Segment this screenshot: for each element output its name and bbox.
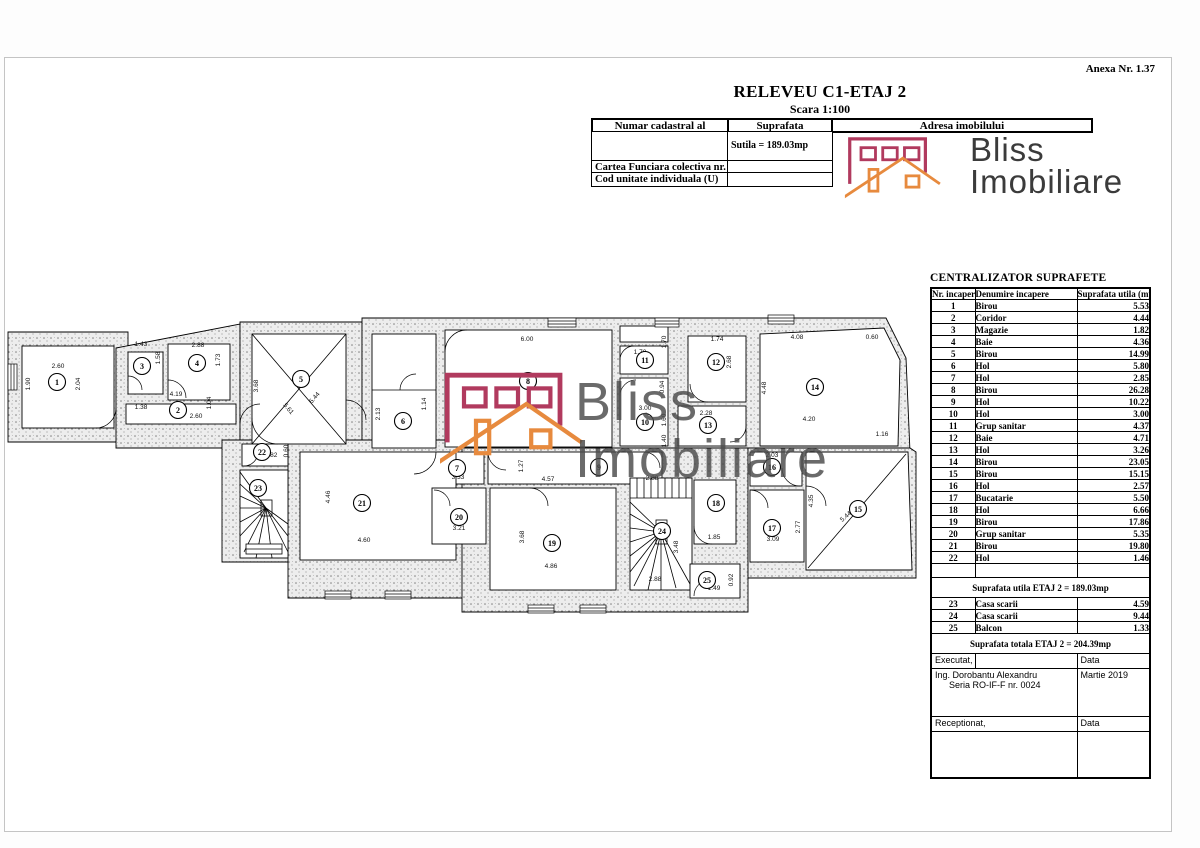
table-row: 16 Hol 2.57 <box>931 480 1150 492</box>
cell-denumire: Coridor <box>975 312 1077 324</box>
cell-denumire: Balcon <box>975 622 1077 634</box>
cell-denumire: Bucatarie <box>975 492 1077 504</box>
cell-suprafata: 1.33 <box>1077 622 1150 634</box>
cell-denumire: Birou <box>975 468 1077 480</box>
cell-denumire: Hol <box>975 480 1077 492</box>
cell-nr: 5 <box>931 348 975 360</box>
table-row: 3 Magazie 1.82 <box>931 324 1150 336</box>
table-row: 23 Casa scarii 4.59 <box>931 598 1150 610</box>
cell-denumire: Hol <box>975 504 1077 516</box>
cell-suprafata: 4.71 <box>1077 432 1150 444</box>
table-row: 24 Casa scarii 9.44 <box>931 610 1150 622</box>
subtotal-label: Suprafata utila ETAJ 2 = 189.03mp <box>931 578 1150 598</box>
cell-suprafata: 19.80 <box>1077 540 1150 552</box>
cell-nr: 19 <box>931 516 975 528</box>
table-row: 10 Hol 3.00 <box>931 408 1150 420</box>
cell-nr: 3 <box>931 324 975 336</box>
brand-line1: Bliss <box>970 134 1200 166</box>
table-row: 6 Hol 5.80 <box>931 360 1150 372</box>
cell-nr: 11 <box>931 420 975 432</box>
cell-nr: 15 <box>931 468 975 480</box>
centralizator-title: CENTRALIZATOR SUPRAFETE <box>930 272 1170 284</box>
cell-denumire: Birou <box>975 516 1077 528</box>
cell-nr: 10 <box>931 408 975 420</box>
cell-nr: 9 <box>931 396 975 408</box>
cadastral-number-value <box>591 131 729 162</box>
table-row: 5 Birou 14.99 <box>931 348 1150 360</box>
surface-table-body: 1 Birou 5.53 2 Coridor 4.44 3 Magazie 1.… <box>931 300 1150 564</box>
table-row: 9 Hol 10.22 <box>931 396 1150 408</box>
cell-suprafata: 4.44 <box>1077 312 1150 324</box>
cell-nr: 4 <box>931 336 975 348</box>
cell-denumire: Baie <box>975 432 1077 444</box>
cell-suprafata: 3.26 <box>1077 444 1150 456</box>
cell-suprafata: 1.46 <box>1077 552 1150 564</box>
cell-suprafata: 5.35 <box>1077 528 1150 540</box>
cell-suprafata: 2.85 <box>1077 372 1150 384</box>
adresa-header: Adresa imobilului <box>831 118 1093 133</box>
cell-nr: 16 <box>931 480 975 492</box>
cell-nr: 18 <box>931 504 975 516</box>
table-row: 17 Bucatarie 5.50 <box>931 492 1150 504</box>
cell-nr: 22 <box>931 552 975 564</box>
cell-denumire: Birou <box>975 384 1077 396</box>
cell-suprafata: 17.86 <box>1077 516 1150 528</box>
cell-suprafata: 5.53 <box>1077 300 1150 312</box>
cell-nr: 13 <box>931 444 975 456</box>
table-row: 8 Birou 26.28 <box>931 384 1150 396</box>
cell-denumire: Birou <box>975 348 1077 360</box>
table-row: 12 Baie 4.71 <box>931 432 1150 444</box>
cell-denumire: Casa scarii <box>975 610 1077 622</box>
cell-nr: 20 <box>931 528 975 540</box>
total-row: Suprafata totala ETAJ 2 = 204.39mp <box>931 634 1150 654</box>
blank-row <box>931 564 1150 578</box>
cell-suprafata: 5.50 <box>1077 492 1150 504</box>
cell-suprafata: 23.05 <box>1077 456 1150 468</box>
cell-nr: 25 <box>931 622 975 634</box>
receptionat-label: Receptionat, <box>931 717 1077 732</box>
cell-suprafata: 10.22 <box>1077 396 1150 408</box>
cell-denumire: Casa scarii <box>975 598 1077 610</box>
data-label-2: Data <box>1077 717 1150 732</box>
cell-denumire: Hol <box>975 552 1077 564</box>
document-page: Anexa Nr. 1.37 RELEVEU C1-ETAJ 2 Scara 1… <box>4 57 1172 832</box>
executat-value <box>975 654 1077 669</box>
brand-logo-text: Bliss Imobiliare <box>970 134 1200 198</box>
table-row: 18 Hol 6.66 <box>931 504 1150 516</box>
cell-denumire: Hol <box>975 444 1077 456</box>
cell-denumire: Birou <box>975 540 1077 552</box>
cell-suprafata: 4.36 <box>1077 336 1150 348</box>
page-scale: Scara 1:100 <box>605 102 1035 117</box>
table-row: 15 Birou 15.15 <box>931 468 1150 480</box>
cell-denumire: Hol <box>975 408 1077 420</box>
table-row: 11 Grup sanitar 4.37 <box>931 420 1150 432</box>
cell-denumire: Birou <box>975 456 1077 468</box>
cell-nr: 1 <box>931 300 975 312</box>
col-header-suprafata: Suprafata utila (mp) <box>1077 288 1150 300</box>
executant-serie: Seria RO-IF-F nr. 0024 <box>935 680 1077 690</box>
cell-suprafata: 4.37 <box>1077 420 1150 432</box>
surface-table-extra-body: 23 Casa scarii 4.59 24 Casa scarii 9.44 … <box>931 598 1150 634</box>
cell-denumire: Grup sanitar <box>975 420 1077 432</box>
cell-suprafata: 26.28 <box>1077 384 1150 396</box>
col-header-denumire: Denumire incapere <box>975 288 1077 300</box>
cell-denumire: Grup sanitar <box>975 528 1077 540</box>
sutila-value: Sutila = 189.03mp <box>727 131 833 162</box>
table-row: 7 Hol 2.85 <box>931 372 1150 384</box>
brand-line2: Imobiliare <box>970 166 1200 198</box>
cell-nr: 6 <box>931 360 975 372</box>
cod-unitate-value <box>727 172 833 187</box>
cell-denumire: Hol <box>975 360 1077 372</box>
cell-nr: 8 <box>931 384 975 396</box>
receptionat-row: Receptionat, Data <box>931 717 1150 732</box>
data-label-1: Data <box>1077 654 1150 669</box>
table-row: 14 Birou 23.05 <box>931 456 1150 468</box>
cell-nr: 24 <box>931 610 975 622</box>
table-row: 1 Birou 5.53 <box>931 300 1150 312</box>
surface-table-header-row: Nr. incapere Denumire incapere Suprafata… <box>931 288 1150 300</box>
surface-table: Nr. incapere Denumire incapere Suprafata… <box>930 287 1151 779</box>
table-row: 4 Baie 4.36 <box>931 336 1150 348</box>
cell-nr: 17 <box>931 492 975 504</box>
cell-suprafata: 14.99 <box>1077 348 1150 360</box>
cod-unitate-label: Cod unitate individuala (U) <box>591 172 729 187</box>
subtotal-row: Suprafata utila ETAJ 2 = 189.03mp <box>931 578 1150 598</box>
table-row: 2 Coridor 4.44 <box>931 312 1150 324</box>
cell-denumire: Birou <box>975 300 1077 312</box>
table-row: 19 Birou 17.86 <box>931 516 1150 528</box>
table-row: 21 Birou 19.80 <box>931 540 1150 552</box>
cell-suprafata: 2.57 <box>1077 480 1150 492</box>
cell-suprafata: 6.66 <box>1077 504 1150 516</box>
cell-nr: 7 <box>931 372 975 384</box>
cell-suprafata: 15.15 <box>1077 468 1150 480</box>
cell-denumire: Hol <box>975 396 1077 408</box>
executant-cell: Ing. Dorobantu Alexandru Seria RO-IF-F n… <box>931 669 1077 717</box>
executat-row: Executat, Data <box>931 654 1150 669</box>
receptionat-empty-row <box>931 732 1150 779</box>
cell-denumire: Hol <box>975 372 1077 384</box>
surface-table-wrap: Nr. incapere Denumire incapere Suprafata… <box>930 287 1151 779</box>
executant-date: Martie 2019 <box>1077 669 1150 717</box>
cell-nr: 12 <box>931 432 975 444</box>
cell-suprafata: 3.00 <box>1077 408 1150 420</box>
house-icon <box>843 134 945 200</box>
table-row: 22 Hol 1.46 <box>931 552 1150 564</box>
total-label: Suprafata totala ETAJ 2 = 204.39mp <box>931 634 1150 654</box>
executat-label: Executat, <box>931 654 975 669</box>
table-row: 20 Grup sanitar 5.35 <box>931 528 1150 540</box>
cell-nr: 23 <box>931 598 975 610</box>
cell-nr: 21 <box>931 540 975 552</box>
cell-suprafata: 5.80 <box>1077 360 1150 372</box>
col-header-nr: Nr. incapere <box>931 288 975 300</box>
table-row: 13 Hol 3.26 <box>931 444 1150 456</box>
table-row: 25 Balcon 1.33 <box>931 622 1150 634</box>
executant-name: Ing. Dorobantu Alexandru <box>935 670 1077 680</box>
cell-denumire: Magazie <box>975 324 1077 336</box>
cell-nr: 14 <box>931 456 975 468</box>
cell-denumire: Baie <box>975 336 1077 348</box>
cell-suprafata: 9.44 <box>1077 610 1150 622</box>
anexa-label: Anexa Nr. 1.37 <box>985 63 1155 75</box>
executant-row: Ing. Dorobantu Alexandru Seria RO-IF-F n… <box>931 669 1150 717</box>
cell-nr: 2 <box>931 312 975 324</box>
cell-suprafata: 1.82 <box>1077 324 1150 336</box>
cell-suprafata: 4.59 <box>1077 598 1150 610</box>
page-title: RELEVEU C1-ETAJ 2 <box>605 82 1035 102</box>
